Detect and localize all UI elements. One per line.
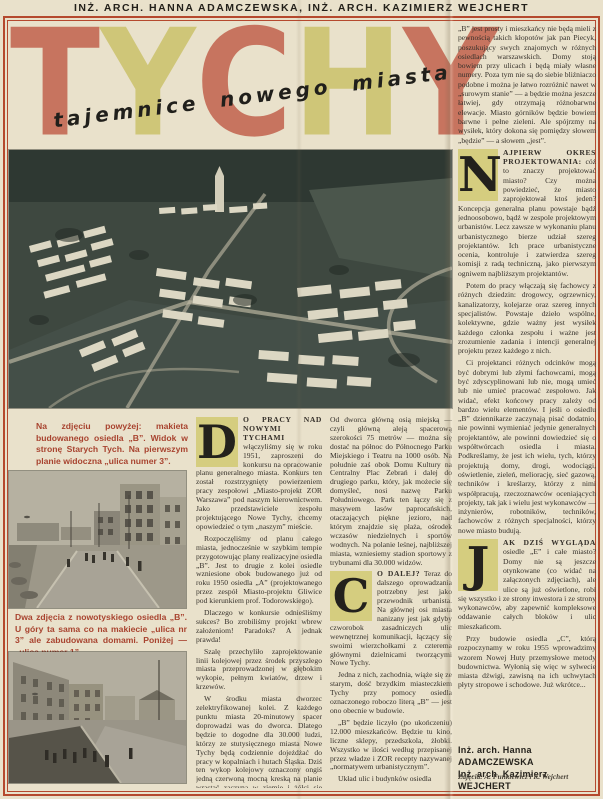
paragraph-lead: O PRACY NAD NOWYMI TYCHAMI [243, 416, 322, 442]
paragraph: Rozpoczęliśmy od planu całego miasta, je… [196, 535, 322, 606]
paragraph: Od dworca główną osią miejską — czyli gł… [330, 416, 452, 567]
paragraph: „B” będzie liczyło (po ukończeniu) 12.00… [330, 719, 452, 772]
paragraph: W środku miasta dworzec zelektryfikowane… [196, 695, 322, 788]
street-top-illustration [9, 471, 186, 608]
paragraph: „B” jest prosty i mieszkańcy nie będą mi… [458, 24, 596, 145]
author-credits: Inż. arch. Hanna ADAMCZEWSKA Inż. arch. … [458, 744, 598, 792]
paragraph: Dlaczego w konkursie odnieśliśmy sukces?… [196, 609, 322, 645]
author-credit-line: Inż. arch. Hanna ADAMCZEWSKA [458, 744, 598, 768]
aerial-model-photo [9, 150, 452, 408]
paragraph: Układ ulic i budynków osiedla [330, 775, 452, 784]
title-letter: Y [100, 18, 196, 150]
aerial-photo-caption: Na zdjęciu powyżej: makieta budowanego o… [36, 421, 188, 467]
street-photo-bottom [9, 652, 186, 783]
paragraph: J AK DZIŚ WYGLĄDA osiedle „E” i całe mia… [458, 538, 596, 631]
paragraph: Ci projektanci różnych odcinków mogą być… [458, 358, 596, 535]
drop-cap: D [196, 417, 238, 467]
drop-cap: N [458, 149, 498, 201]
paragraph: Potem do pracy włączają się fachowcy z r… [458, 281, 596, 355]
drop-cap: J [458, 539, 498, 591]
page-title: T Y C H Y tajemnice nowego miasta [10, 18, 452, 158]
drop-cap: C [330, 571, 372, 621]
paragraph-lead: AK DZIŚ WYGLĄDA [503, 538, 596, 547]
street-bottom-illustration [9, 652, 186, 783]
street-photo-top [9, 471, 186, 608]
paragraph: Przy budowie osiedla „C”, którą rozpoczy… [458, 634, 596, 690]
text-column-middle: Od dworca główną osią miejską — czyli gł… [330, 416, 452, 788]
text-column-right: „B” jest prosty i mieszkańcy nie będą mi… [458, 24, 596, 740]
paragraph: Jedna z nich, zachodnia, wiąże się ze st… [330, 671, 452, 716]
aerial-model-illustration [9, 150, 452, 408]
photo-credit: Zdjęcia: A. Funkiewicz i K. Wejchert [458, 772, 598, 781]
paragraph: N AJPIERW OKRES PROJEKTOWANIA: cóż to zn… [458, 148, 596, 278]
paragraph: Szalę przechyliło zaprojektowanie linii … [196, 648, 322, 693]
text-column-left: D O PRACY NAD NOWYMI TYCHAMI włączyliśmy… [196, 416, 322, 788]
paragraph-lead: O DALEJ? [377, 569, 420, 578]
paragraph: D O PRACY NAD NOWYMI TYCHAMI włączyliśmy… [196, 416, 322, 532]
magazine-page: INŻ. ARCH. HANNA ADAMCZEWSKA, INŻ. ARCH.… [0, 0, 603, 799]
paragraph: C O DALEJ? Teraz do dalszego oprowadzani… [330, 570, 452, 668]
